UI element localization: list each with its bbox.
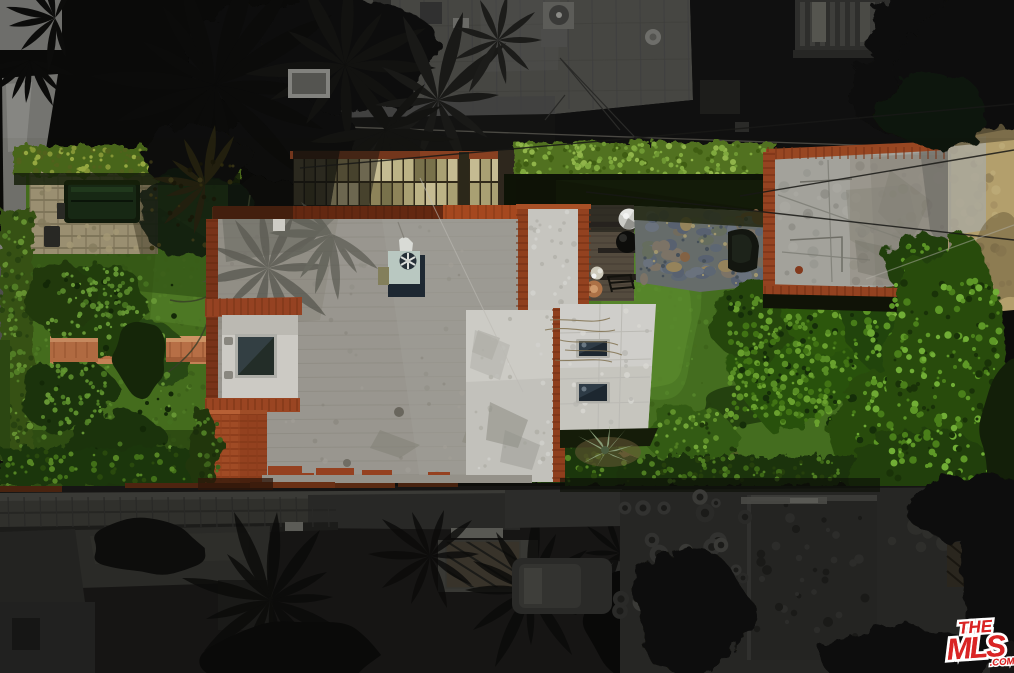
svg-text:.COM: .COM [989, 656, 1014, 669]
